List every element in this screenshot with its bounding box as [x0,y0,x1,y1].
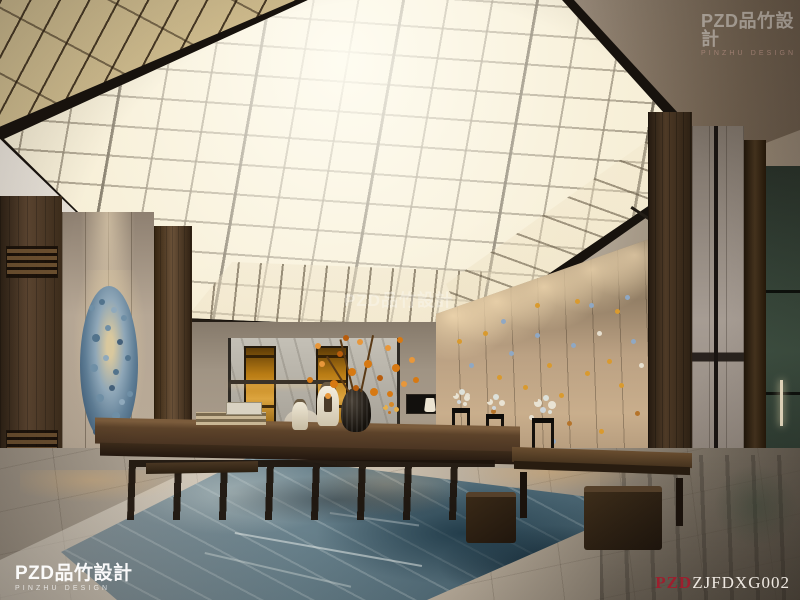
left-bench [146,461,258,474]
bench-leg [676,478,683,526]
display-shelf [230,380,330,384]
alcove-shelf-line [766,392,800,395]
white-flower-sculpture [486,398,490,402]
table-lamp [424,398,436,412]
thin-floor-lamp [780,380,783,426]
white-flower-sculpture [452,392,456,396]
cube-stool [466,492,516,543]
interior-render: PZD品竹設計 PZD品竹設計 PINZHU DESIGN PZD品竹設計 PI… [0,0,800,600]
orange-blossoms [298,332,302,336]
coral-texture [84,296,88,300]
white-lantern-small [292,402,308,430]
cabinet-grille [6,246,58,278]
small-orange-flowers [382,404,385,407]
bench-leg [520,472,527,518]
butterfly-ornaments [440,244,443,247]
dark-vase [341,388,371,432]
white-flower-sculpture [534,398,538,402]
lantern-window [324,396,332,412]
white-box [226,402,262,415]
alcove-shelf-line [766,290,800,293]
cube-stool [584,486,662,550]
